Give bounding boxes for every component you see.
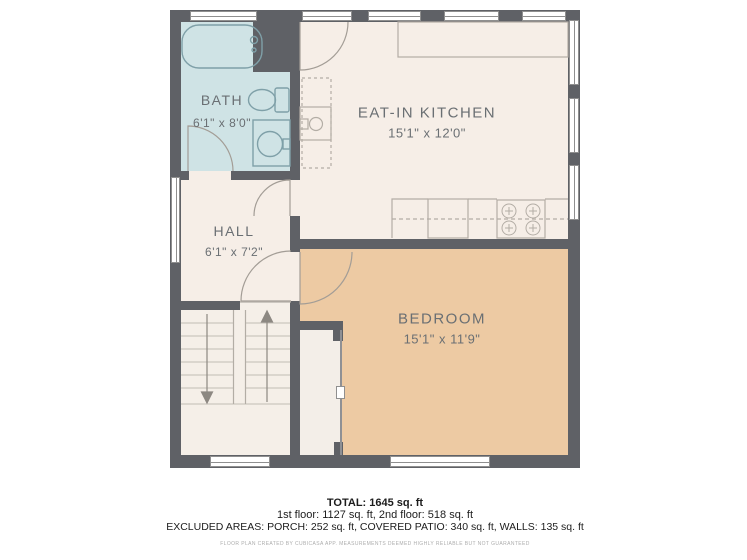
kitchen-top-counter — [398, 22, 568, 57]
kitchen-sink-icon — [310, 118, 323, 131]
room-dims-bedroom: 15'1" x 11'9" — [404, 332, 481, 347]
room-label-bedroom: BEDROOM — [398, 311, 486, 328]
floor-plan-page: BATH 6'1" x 8'0" EAT-IN KITCHEN 15'1" x … — [0, 0, 747, 560]
tub-faucet-icon — [251, 37, 258, 44]
bathtub-icon — [182, 25, 262, 68]
stairs-down-arrow-icon — [202, 314, 213, 403]
staircase — [181, 310, 290, 404]
bath-faucet-icon — [283, 139, 290, 149]
room-label-bath: BATH — [201, 92, 243, 108]
room-dims-hall: 6'1" x 7'2" — [205, 245, 263, 259]
door-arcs — [188, 22, 352, 304]
plan-graphics — [0, 0, 747, 560]
bath-door-arc — [188, 126, 233, 171]
stair-divider — [234, 310, 246, 404]
room-label-hall: HALL — [213, 223, 254, 239]
area-summary: TOTAL: 1645 sq. ft 1st floor: 1127 sq. f… — [60, 497, 690, 547]
bath-vanity-icon — [253, 120, 290, 166]
toilet-bowl-icon — [249, 90, 276, 111]
kitchen-island-outline — [302, 78, 331, 168]
excluded-areas-text: EXCLUDED AREAS: PORCH: 252 sq. ft, COVER… — [60, 521, 690, 533]
room-label-kitchen: EAT-IN KITCHEN — [358, 105, 496, 122]
hall-kitchen-door-arc — [254, 180, 290, 216]
kitchen-entry-door-arc — [300, 22, 348, 70]
bath-sink-icon — [258, 132, 283, 157]
kitchen-sink-cabinet — [300, 107, 331, 140]
bedroom-door-arc — [300, 252, 352, 304]
disclaimer-text: FLOOR PLAN CREATED BY CUBICASA APP. MEAS… — [60, 541, 690, 547]
kitchen-faucet-icon — [300, 119, 308, 129]
toilet-tank-icon — [275, 88, 289, 112]
room-dims-bath: 6'1" x 8'0" — [193, 116, 251, 130]
floor-areas-text: 1st floor: 1127 sq. ft, 2nd floor: 518 s… — [60, 509, 690, 521]
total-area-text: TOTAL: 1645 sq. ft — [60, 497, 690, 509]
room-dims-kitchen: 15'1" x 12'0" — [388, 126, 466, 141]
